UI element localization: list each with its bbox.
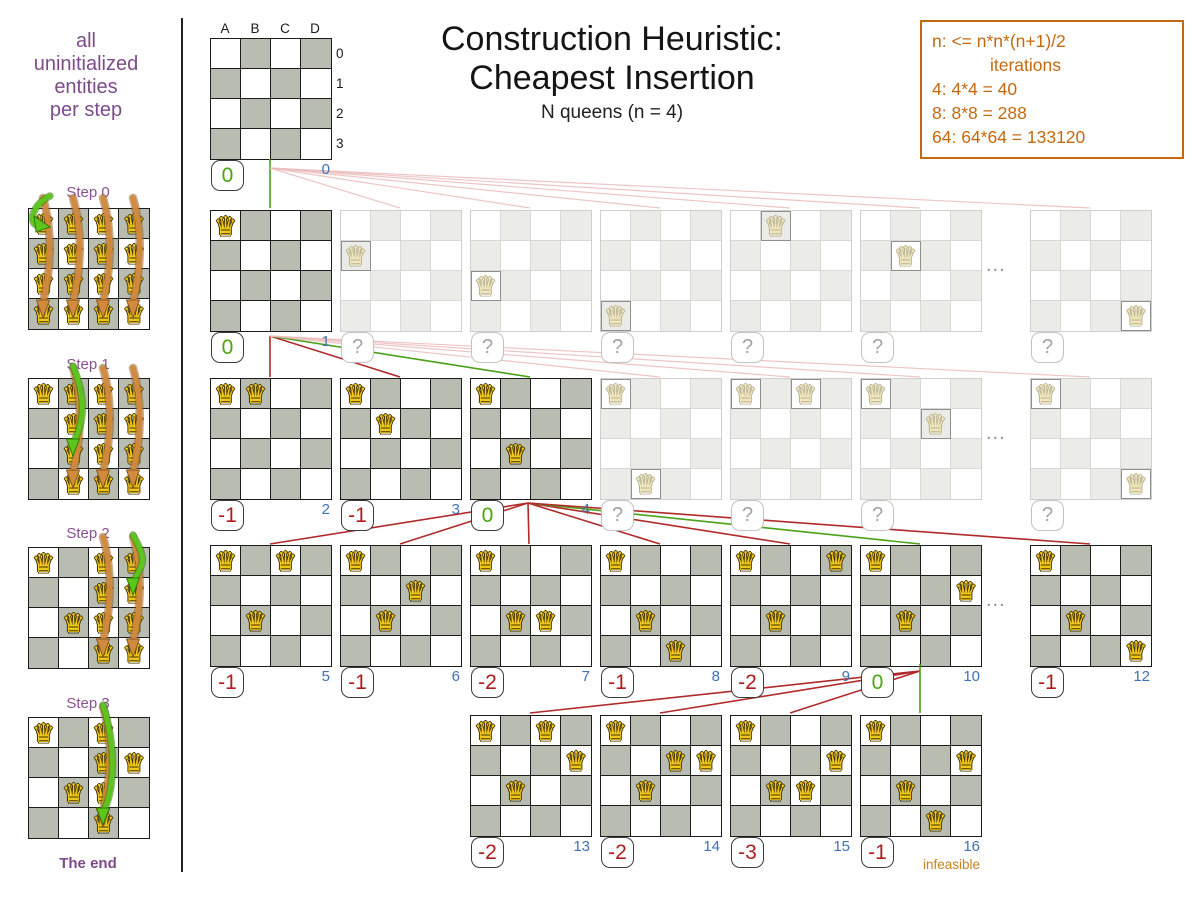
board-cell xyxy=(891,301,921,331)
board-cell xyxy=(271,301,301,331)
board-cell xyxy=(761,576,791,606)
board-cell: ♛ xyxy=(791,379,821,409)
orange-arrowhead-icon xyxy=(97,639,110,657)
board-cell xyxy=(401,636,431,666)
queen-icon: ♛ xyxy=(274,548,297,574)
board-cell xyxy=(1031,469,1061,499)
board-cell xyxy=(371,439,401,469)
board-cell xyxy=(691,409,721,439)
board-cell xyxy=(301,39,331,69)
board-cell xyxy=(531,241,561,271)
tree-board: ♛ xyxy=(210,210,332,332)
board-cell xyxy=(861,271,891,301)
the-end-label: The end xyxy=(28,855,148,872)
board-cell xyxy=(471,776,501,806)
ellipsis: ... xyxy=(986,422,1006,445)
board-cell xyxy=(951,606,981,636)
board-cell xyxy=(601,439,631,469)
board-cell xyxy=(1031,439,1061,469)
board-cell xyxy=(891,546,921,576)
board-cell xyxy=(761,409,791,439)
board-cell xyxy=(921,546,951,576)
tree-board: ♛♛ xyxy=(470,378,592,500)
board-cell xyxy=(341,409,371,439)
board-cell xyxy=(791,746,821,776)
board-cell xyxy=(791,241,821,271)
sidebar-intro-line: entities xyxy=(6,76,166,99)
board-cell xyxy=(1121,241,1151,271)
ellipsis: ... xyxy=(986,254,1006,277)
board-cell xyxy=(271,469,301,499)
ellipsis: ... xyxy=(986,589,1006,612)
board-cell: ♛ xyxy=(601,379,631,409)
queen-icon: ♛ xyxy=(864,548,887,574)
board-cell xyxy=(761,746,791,776)
board-cell xyxy=(861,606,891,636)
board-cell: ♛ xyxy=(501,606,531,636)
diagram-canvas: all uninitialized entities per step Cons… xyxy=(0,0,1200,900)
iteration-label: 1 xyxy=(284,333,330,350)
board-cell: ♛ xyxy=(791,776,821,806)
iteration-label: 4 xyxy=(544,501,590,518)
orange-arrowhead-icon xyxy=(97,470,110,488)
board-cell xyxy=(501,301,531,331)
board-cell xyxy=(501,469,531,499)
board-cell xyxy=(661,439,691,469)
board-cell xyxy=(861,746,891,776)
board-cell xyxy=(691,776,721,806)
board-cell xyxy=(861,241,891,271)
board-cell xyxy=(561,211,591,241)
queen-icon: ♛ xyxy=(344,548,367,574)
board-cell xyxy=(891,379,921,409)
step-arrows xyxy=(18,531,158,681)
board-cell xyxy=(1091,636,1121,666)
board-cell xyxy=(891,576,921,606)
board-cell: ♛ xyxy=(601,716,631,746)
board-cell xyxy=(561,301,591,331)
score-badge: ? xyxy=(601,332,634,363)
board-cell xyxy=(891,806,921,836)
board-cell xyxy=(241,99,271,129)
board-cell xyxy=(1091,211,1121,241)
board-cell xyxy=(301,576,331,606)
queen-icon: ♛ xyxy=(864,381,887,407)
queen-icon: ♛ xyxy=(504,441,527,467)
sidebar-intro-line: all xyxy=(6,30,166,53)
board-cell: ♛ xyxy=(821,546,851,576)
board-cell xyxy=(691,271,721,301)
board-cell xyxy=(951,241,981,271)
step-arrows xyxy=(18,362,158,512)
board-cell xyxy=(561,716,591,746)
board-cell xyxy=(631,576,661,606)
board-cell xyxy=(861,806,891,836)
board-cell xyxy=(561,576,591,606)
board-cell xyxy=(501,576,531,606)
queen-icon: ♛ xyxy=(1034,381,1057,407)
board-cell xyxy=(861,409,891,439)
board-cell xyxy=(821,211,851,241)
iterations-info-box: n: <= n*n*(n+1)/2 iterations 4: 4*4 = 40… xyxy=(920,20,1184,159)
board-cell xyxy=(921,606,951,636)
board-cell xyxy=(661,301,691,331)
tree-board: ♛ xyxy=(730,210,852,332)
board-cell xyxy=(631,379,661,409)
queen-icon: ♛ xyxy=(734,718,757,744)
queen-icon: ♛ xyxy=(604,718,627,744)
row-label: 2 xyxy=(336,106,344,121)
board-cell xyxy=(921,439,951,469)
board-cell: ♛ xyxy=(601,546,631,576)
board-cell xyxy=(211,129,241,159)
board-cell xyxy=(601,576,631,606)
tree-board: ♛♛♛♛ xyxy=(470,715,592,837)
board-cell xyxy=(271,241,301,271)
board-cell xyxy=(271,439,301,469)
tree-board: ♛♛♛ xyxy=(1030,545,1152,667)
board-cell xyxy=(791,606,821,636)
board-cell xyxy=(561,241,591,271)
board-cell xyxy=(951,409,981,439)
board-cell xyxy=(601,806,631,836)
board-cell xyxy=(341,576,371,606)
board-cell xyxy=(691,241,721,271)
board-cell xyxy=(861,301,891,331)
board-cell: ♛ xyxy=(371,409,401,439)
board-cell xyxy=(661,211,691,241)
board-cell: ♛ xyxy=(1031,546,1061,576)
board-cell: ♛ xyxy=(501,776,531,806)
board-cell xyxy=(601,776,631,806)
board-cell xyxy=(301,271,331,301)
board-cell xyxy=(1061,576,1091,606)
board-cell: ♛ xyxy=(631,606,661,636)
score-badge: ? xyxy=(731,332,764,363)
board-cell xyxy=(791,576,821,606)
board-cell xyxy=(691,806,721,836)
board-cell xyxy=(791,211,821,241)
board-cell xyxy=(951,546,981,576)
board-cell xyxy=(341,271,371,301)
board-cell xyxy=(1121,409,1151,439)
board-cell xyxy=(821,301,851,331)
board-cell: ♛ xyxy=(341,546,371,576)
board-cell xyxy=(601,636,631,666)
board-cell xyxy=(731,746,761,776)
board-cell: ♛ xyxy=(891,606,921,636)
board-cell: ♛ xyxy=(471,271,501,301)
board-cell: ♛ xyxy=(371,606,401,636)
board-cell xyxy=(1061,301,1091,331)
board-cell xyxy=(531,806,561,836)
board-cell xyxy=(431,211,461,241)
board-cell xyxy=(501,716,531,746)
iteration-label: 15 xyxy=(804,838,850,855)
board-cell xyxy=(1121,606,1151,636)
board-cell xyxy=(661,576,691,606)
board-cell xyxy=(471,746,501,776)
board-cell xyxy=(471,606,501,636)
score-badge: -2 xyxy=(601,837,634,868)
board-cell: ♛ xyxy=(211,211,241,241)
board-cell xyxy=(731,439,761,469)
board-cell xyxy=(401,271,431,301)
board-cell xyxy=(661,716,691,746)
board-cell xyxy=(371,636,401,666)
board-cell xyxy=(211,69,241,99)
board-cell xyxy=(1091,241,1121,271)
board-cell: ♛ xyxy=(631,776,661,806)
queen-icon: ♛ xyxy=(474,548,497,574)
info-box-line: 64: 64*64 = 133120 xyxy=(932,125,1172,149)
board-cell: ♛ xyxy=(211,379,241,409)
board-cell xyxy=(371,241,401,271)
board-cell xyxy=(341,439,371,469)
board-cell xyxy=(271,379,301,409)
board-cell xyxy=(501,546,531,576)
score-badge: ? xyxy=(341,332,374,363)
board-cell xyxy=(561,606,591,636)
board-cell xyxy=(601,211,631,241)
queen-icon: ♛ xyxy=(214,548,237,574)
tree-board: ♛♛♛ xyxy=(340,545,462,667)
board-cell xyxy=(821,409,851,439)
board-cell xyxy=(1031,211,1061,241)
board-cell xyxy=(1091,439,1121,469)
board-cell xyxy=(271,271,301,301)
board-cell xyxy=(561,636,591,666)
iteration-label: 14 xyxy=(674,838,720,855)
board-cell xyxy=(761,546,791,576)
board-cell xyxy=(821,271,851,301)
score-badge: -2 xyxy=(731,667,764,698)
board-cell: ♛ xyxy=(921,806,951,836)
board-cell xyxy=(631,439,661,469)
board-cell xyxy=(661,606,691,636)
board-cell xyxy=(531,211,561,241)
iteration-label: 3 xyxy=(414,501,460,518)
board-cell xyxy=(861,211,891,241)
score-badge: 0 xyxy=(211,332,244,363)
board-cell xyxy=(301,301,331,331)
board-cell xyxy=(301,469,331,499)
board-cell xyxy=(921,636,951,666)
queen-icon: ♛ xyxy=(634,778,657,804)
sidebar-intro-line: uninitialized xyxy=(6,53,166,76)
board-cell: ♛ xyxy=(821,746,851,776)
board-cell xyxy=(301,211,331,241)
board-cell xyxy=(791,546,821,576)
board-cell xyxy=(371,379,401,409)
tree-board: ♛ xyxy=(600,210,722,332)
score-badge: 0 xyxy=(471,500,504,531)
board-cell xyxy=(1091,409,1121,439)
queen-icon: ♛ xyxy=(214,213,237,239)
queen-icon: ♛ xyxy=(474,718,497,744)
board-cell xyxy=(791,469,821,499)
board-cell: ♛ xyxy=(471,546,501,576)
board-cell xyxy=(891,211,921,241)
board-cell xyxy=(211,469,241,499)
board-cell xyxy=(691,469,721,499)
tree-board: ♛♛♛ xyxy=(600,545,722,667)
column-label: A xyxy=(210,21,240,36)
score-badge: ? xyxy=(861,332,894,363)
board-cell: ♛ xyxy=(891,776,921,806)
queen-icon: ♛ xyxy=(534,718,557,744)
tree-board: ♛ xyxy=(860,210,982,332)
score-badge: ? xyxy=(1031,500,1064,531)
board-cell xyxy=(501,271,531,301)
queen-icon: ♛ xyxy=(694,748,717,774)
board-cell xyxy=(501,241,531,271)
board-cell xyxy=(921,271,951,301)
row-label: 1 xyxy=(336,76,344,91)
board-cell xyxy=(371,546,401,576)
column-label: C xyxy=(270,21,300,36)
board-cell xyxy=(241,129,271,159)
board-cell xyxy=(661,776,691,806)
iteration-label: 8 xyxy=(674,668,720,685)
board-cell xyxy=(821,439,851,469)
board-cell xyxy=(861,636,891,666)
board-cell xyxy=(401,301,431,331)
queen-icon: ♛ xyxy=(474,381,497,407)
tree-board: ♛♛ xyxy=(730,378,852,500)
board-cell xyxy=(951,469,981,499)
step-arrows xyxy=(18,701,158,851)
board-cell xyxy=(891,439,921,469)
board-cell xyxy=(891,409,921,439)
board-cell: ♛ xyxy=(951,746,981,776)
board-cell xyxy=(1061,546,1091,576)
board-cell xyxy=(921,379,951,409)
board-cell xyxy=(1031,241,1061,271)
board-cell xyxy=(561,546,591,576)
board-cell xyxy=(661,409,691,439)
queen-icon: ♛ xyxy=(824,548,847,574)
board-cell xyxy=(371,211,401,241)
board-cell xyxy=(531,546,561,576)
board-cell xyxy=(301,69,331,99)
queen-icon: ♛ xyxy=(824,748,847,774)
board-cell xyxy=(921,716,951,746)
board-cell: ♛ xyxy=(1121,301,1151,331)
board-cell xyxy=(601,271,631,301)
board-cell xyxy=(471,409,501,439)
board-cell xyxy=(241,271,271,301)
board-cell xyxy=(891,636,921,666)
board-cell: ♛ xyxy=(271,546,301,576)
board-cell xyxy=(271,409,301,439)
iteration-label: 6 xyxy=(414,668,460,685)
queen-icon: ♛ xyxy=(954,748,977,774)
board-cell xyxy=(401,409,431,439)
board-cell xyxy=(211,606,241,636)
board-cell xyxy=(471,301,501,331)
queen-icon: ♛ xyxy=(374,608,397,634)
board-cell xyxy=(241,439,271,469)
board-cell xyxy=(921,241,951,271)
queen-icon: ♛ xyxy=(794,778,817,804)
board-cell xyxy=(371,576,401,606)
board-cell xyxy=(301,99,331,129)
queen-icon: ♛ xyxy=(344,243,367,269)
board-cell xyxy=(301,379,331,409)
board-cell xyxy=(301,129,331,159)
queen-icon: ♛ xyxy=(924,411,947,437)
board-cell xyxy=(531,409,561,439)
score-badge: -1 xyxy=(1031,667,1064,698)
board-cell xyxy=(241,69,271,99)
score-badge: -2 xyxy=(471,837,504,868)
board-cell xyxy=(791,636,821,666)
board-cell xyxy=(471,469,501,499)
board-cell: ♛ xyxy=(1121,636,1151,666)
score-badge: -1 xyxy=(341,667,374,698)
board-cell xyxy=(431,546,461,576)
board-cell xyxy=(761,806,791,836)
board-cell xyxy=(1091,379,1121,409)
column-label: D xyxy=(300,21,330,36)
row-label: 3 xyxy=(336,136,344,151)
board-cell xyxy=(341,636,371,666)
board-cell xyxy=(821,806,851,836)
board-cell xyxy=(371,469,401,499)
queen-icon: ♛ xyxy=(1124,638,1147,664)
board-cell: ♛ xyxy=(891,241,921,271)
board-cell: ♛ xyxy=(861,546,891,576)
queen-icon: ♛ xyxy=(604,381,627,407)
board-cell: ♛ xyxy=(761,211,791,241)
board-cell xyxy=(1091,576,1121,606)
board-cell xyxy=(1091,301,1121,331)
board-cell xyxy=(791,409,821,439)
board-cell xyxy=(371,301,401,331)
board-cell xyxy=(341,469,371,499)
board-cell xyxy=(691,716,721,746)
board-cell xyxy=(301,546,331,576)
board-cell xyxy=(821,241,851,271)
board-cell xyxy=(661,379,691,409)
queen-icon: ♛ xyxy=(604,303,627,329)
board-cell: ♛ xyxy=(601,301,631,331)
tree-board: ♛ xyxy=(470,210,592,332)
board-cell xyxy=(891,271,921,301)
board-cell xyxy=(561,806,591,836)
board-cell xyxy=(471,439,501,469)
board-cell xyxy=(731,606,761,636)
board-cell xyxy=(561,439,591,469)
board-cell xyxy=(241,636,271,666)
pink-edge-line xyxy=(270,168,920,208)
board-cell xyxy=(431,636,461,666)
board-cell xyxy=(211,99,241,129)
board-cell xyxy=(601,746,631,776)
board-cell xyxy=(821,606,851,636)
queen-icon: ♛ xyxy=(474,273,497,299)
board-cell xyxy=(691,301,721,331)
board-cell xyxy=(731,271,761,301)
board-cell xyxy=(271,606,301,636)
board-cell xyxy=(341,301,371,331)
board-cell xyxy=(691,211,721,241)
iteration-label: 5 xyxy=(284,668,330,685)
queen-icon: ♛ xyxy=(244,381,267,407)
queen-icon: ♛ xyxy=(1124,471,1147,497)
board-cell xyxy=(1121,546,1151,576)
